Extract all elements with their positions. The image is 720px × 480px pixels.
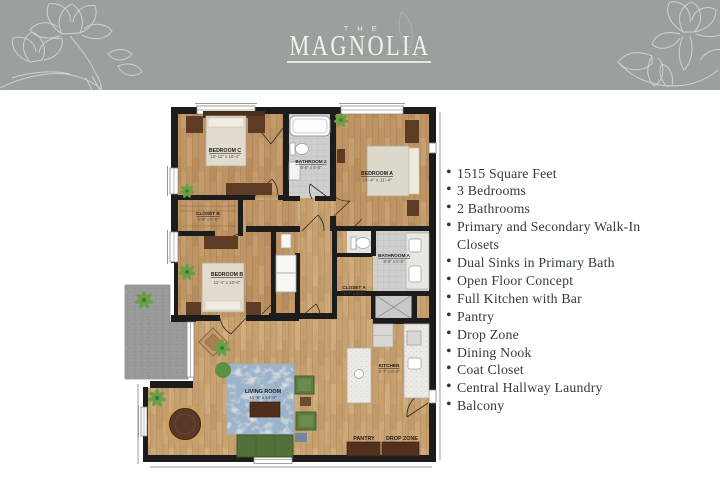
svg-text:14'-4" x 11'-4": 14'-4" x 11'-4" <box>362 178 392 184</box>
svg-text:CLOSET A: CLOSET A <box>342 285 366 290</box>
svg-text:DROP ZONE: DROP ZONE <box>386 436 418 442</box>
svg-text:10'-11" x 10'-4": 10'-11" x 10'-4" <box>210 154 240 159</box>
svg-text:BEDROOM B: BEDROOM B <box>211 272 244 278</box>
svg-text:5'-7" x 5'-0": 5'-7" x 5'-0" <box>343 291 365 296</box>
svg-text:PANTRY: PANTRY <box>353 436 375 442</box>
svg-text:11'-4" x 10'-6": 11'-4" x 10'-6" <box>214 280 241 285</box>
svg-text:6'-9" x 5'-6": 6'-9" x 5'-6" <box>197 217 219 222</box>
svg-text:KITCHEN: KITCHEN <box>379 363 400 368</box>
svg-text:BEDROOM A: BEDROOM A <box>361 171 393 177</box>
svg-text:BATHROOM 2: BATHROOM 2 <box>295 159 327 164</box>
svg-text:15'-6" x 14'-0": 15'-6" x 14'-0" <box>249 395 276 400</box>
svg-text:8'-9" x 5'-0": 8'-9" x 5'-0" <box>383 259 405 264</box>
svg-text:9'-8" x 5'-0": 9'-8" x 5'-0" <box>300 165 322 170</box>
svg-text:BATHROOM A: BATHROOM A <box>378 253 410 258</box>
svg-text:CLOSET B: CLOSET B <box>196 211 220 216</box>
svg-text:9'-7" x 5'-0": 9'-7" x 5'-0" <box>378 369 400 374</box>
